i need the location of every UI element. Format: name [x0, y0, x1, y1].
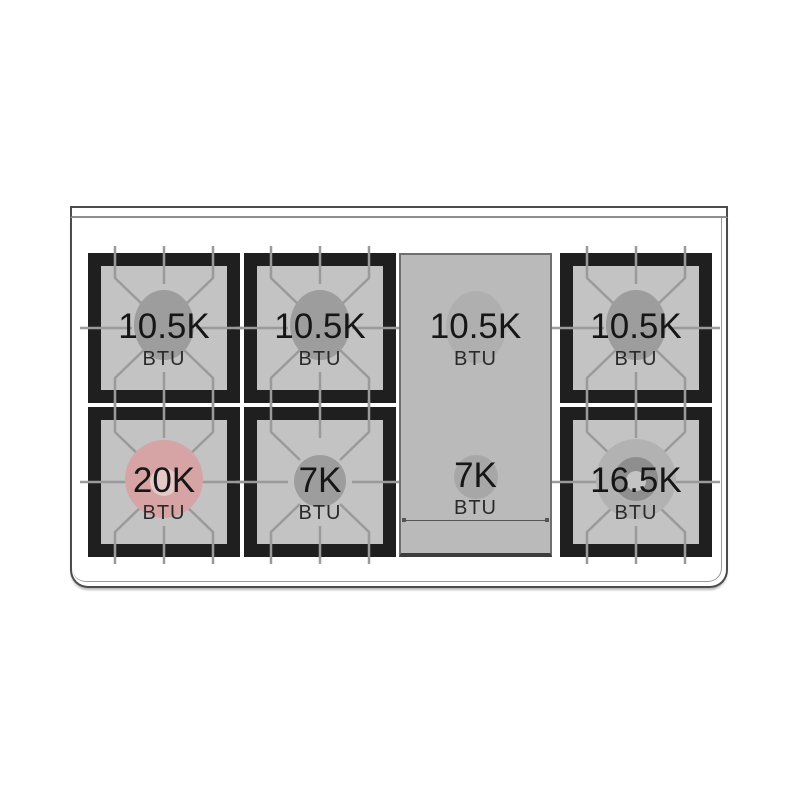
griddle-burner-front-icon — [454, 455, 498, 499]
burner-rear-left: 10.5K BTU — [88, 253, 240, 403]
burner-flame-icon — [606, 290, 666, 360]
burner-grate-icon — [88, 253, 240, 403]
griddle-divider-line — [402, 520, 549, 521]
cooktop-diagram: 10.5K BTU 10.5K BTU 10.5K — [0, 0, 800, 800]
griddle-burner-rear-icon — [446, 291, 506, 363]
burner-grate-icon — [560, 253, 712, 403]
burner-grate-icon — [88, 407, 240, 557]
burner-rear-center-left: 10.5K BTU — [244, 253, 396, 403]
griddle-panel: 10.5K BTU 7K BTU — [399, 253, 552, 557]
burner-flame-icon — [290, 290, 350, 360]
burner-rear-right: 10.5K BTU — [560, 253, 712, 403]
cooktop-back-trim — [70, 206, 728, 218]
burner-grate-icon — [244, 253, 396, 403]
burner-front-center-left: 7K BTU — [244, 407, 396, 557]
burner-grate-icon — [560, 407, 712, 557]
power-burner-center-icon — [150, 468, 178, 496]
burner-front-left: 20K BTU — [88, 407, 240, 557]
dual-ring-center-icon — [626, 471, 646, 491]
burner-btu-unit: BTU — [401, 496, 550, 520]
burner-grate-icon — [244, 407, 396, 557]
burner-front-right: 16.5K BTU — [560, 407, 712, 557]
burner-flame-icon — [294, 455, 346, 507]
burner-flame-icon — [134, 290, 194, 360]
